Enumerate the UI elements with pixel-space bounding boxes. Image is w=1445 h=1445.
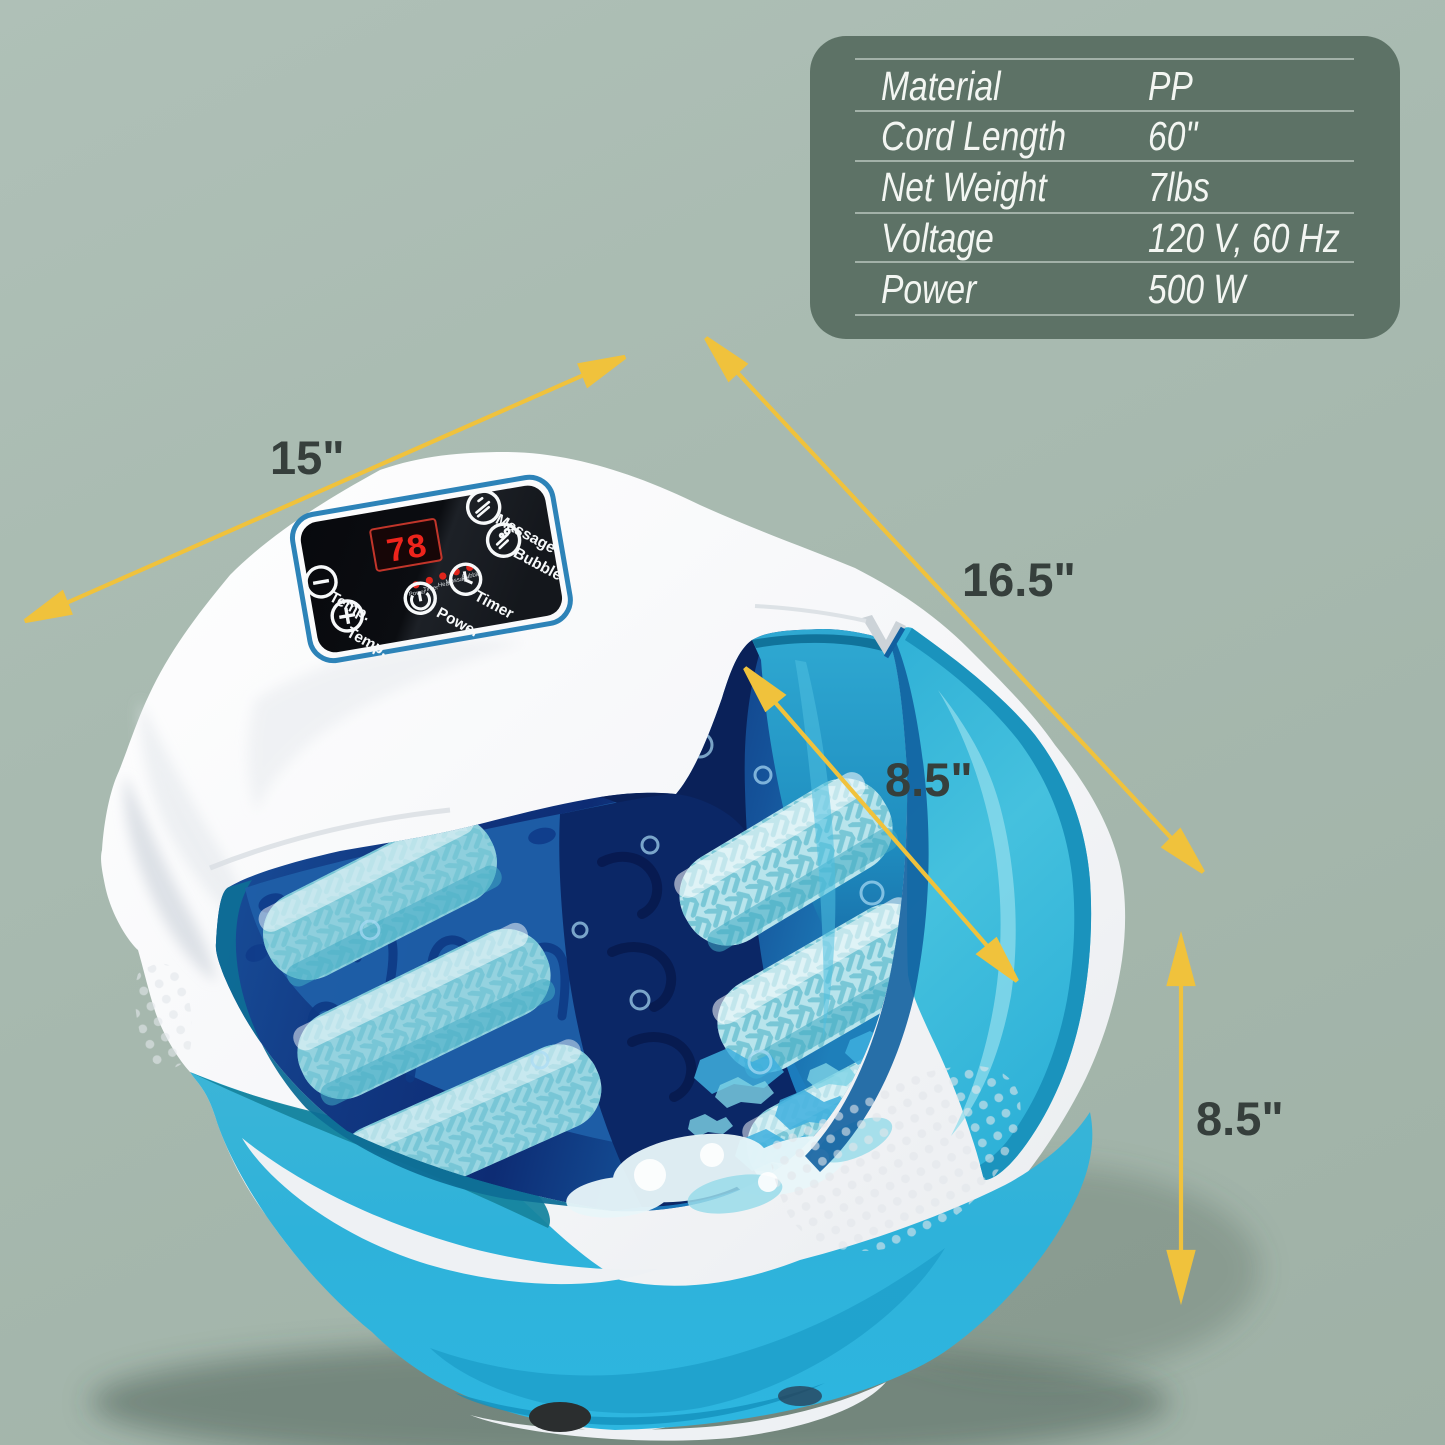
svg-text:78: 78: [384, 529, 431, 573]
